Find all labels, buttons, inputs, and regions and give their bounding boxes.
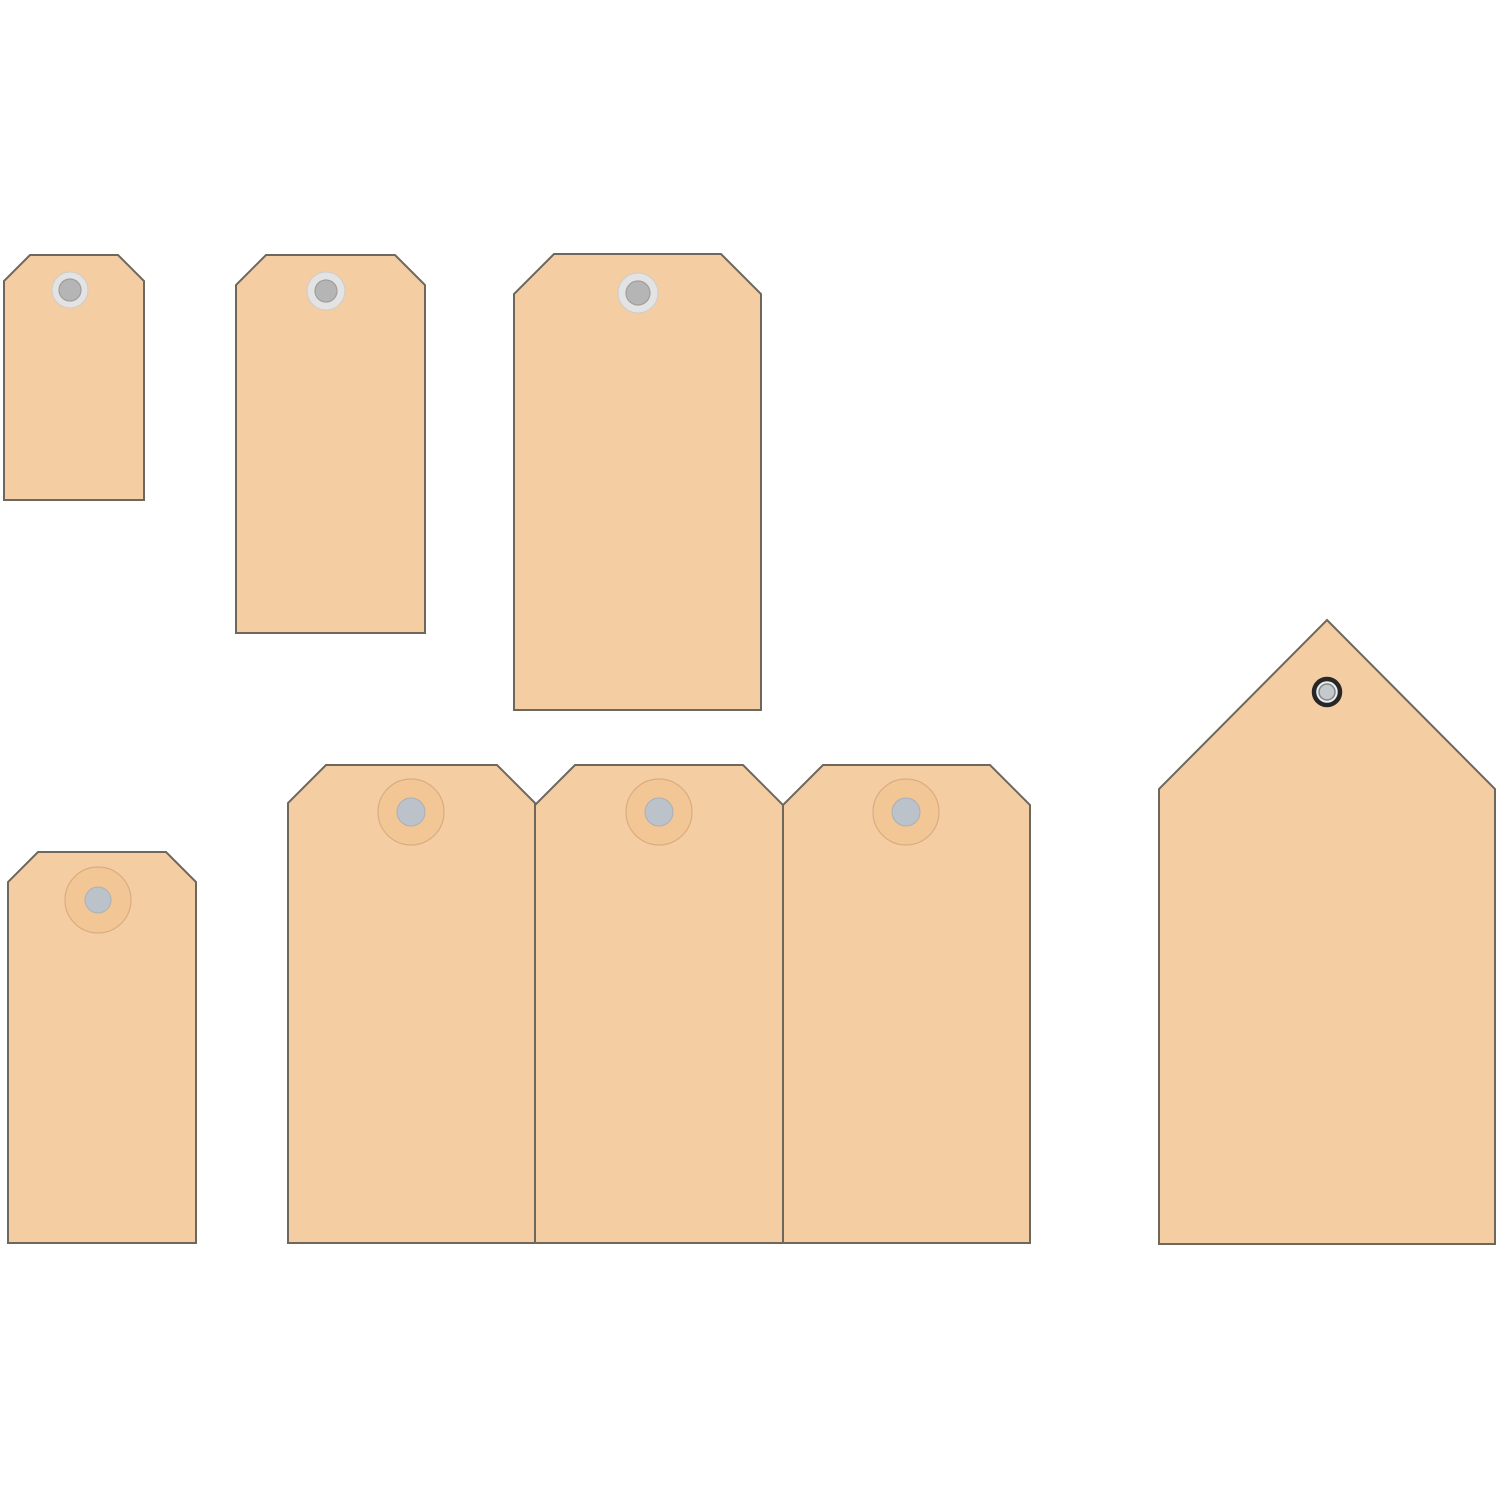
shipping-tags-illustration [0, 0, 1500, 1500]
tag-pointed-right [1159, 620, 1495, 1244]
tag-large-top-body [514, 254, 761, 710]
tag-small-top-left-hole-center-icon [59, 279, 81, 301]
tag-small-bottom-left [8, 852, 196, 1243]
tag-medium-top-hole-center-icon [315, 280, 337, 302]
tag-bottom-row-3 [783, 765, 1030, 1243]
tags-canvas [0, 0, 1500, 1500]
tag-medium-top-body [236, 255, 425, 633]
tag-bottom-row-2-hole-center-icon [645, 798, 673, 826]
tag-large-top [514, 254, 761, 710]
tag-bottom-row-3-hole-center-icon [892, 798, 920, 826]
tag-pointed-right-eyelet-center-icon [1319, 684, 1335, 700]
tag-large-top-hole-center-icon [626, 281, 650, 305]
tag-small-bottom-left-hole-center-icon [85, 887, 111, 913]
tag-bottom-row-1-hole-center-icon [397, 798, 425, 826]
tag-pointed-right-body [1159, 620, 1495, 1244]
tag-small-top-left [4, 255, 144, 500]
tag-bottom-row-1 [288, 765, 535, 1243]
tag-medium-top [236, 255, 425, 633]
tag-bottom-row-2 [535, 765, 783, 1243]
